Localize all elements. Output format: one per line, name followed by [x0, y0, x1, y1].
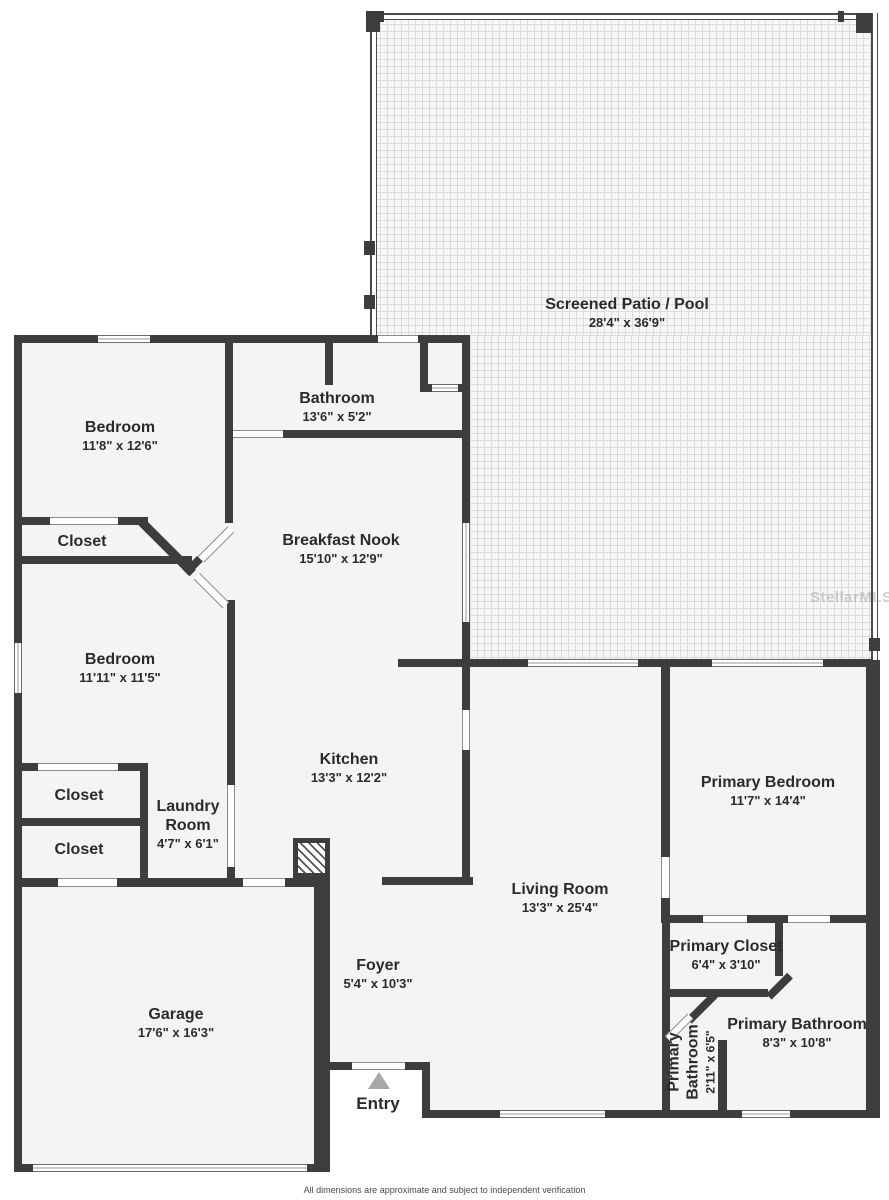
- entry-arrow-icon: [368, 1072, 390, 1089]
- room-name: Bathroom: [299, 389, 375, 408]
- room-name: Room: [156, 816, 219, 835]
- patio-floor-lower: [470, 335, 872, 660]
- room-name: Breakfast Nook: [282, 531, 399, 550]
- patio-floor-upper: [373, 17, 872, 335]
- room-dims: 15'10" x 12'9": [282, 550, 399, 567]
- room-dims: 13'3" x 12'2": [311, 769, 387, 786]
- chimney-chase: [293, 838, 330, 878]
- wall: [14, 556, 192, 564]
- room-name: Bedroom: [82, 418, 158, 437]
- room-label-bedroom-1: Bedroom 11'8" x 12'6": [82, 418, 158, 454]
- mls-watermark: StellarMLS: [810, 589, 889, 606]
- door-opening: [50, 517, 118, 525]
- room-name: Foyer: [343, 956, 412, 975]
- front-door-opening: [352, 1062, 405, 1070]
- room-name: Closet: [58, 532, 107, 551]
- room-name: Laundry: [156, 797, 219, 816]
- door-opening: [233, 430, 283, 438]
- patio-screen-wall-top: [370, 13, 878, 20]
- window: [462, 523, 470, 622]
- room-label-bathroom: Bathroom 13'6" x 5'2": [299, 389, 375, 425]
- floor-plan: Screened Patio / Pool 28'4" x 36'9" Bedr…: [0, 0, 889, 1200]
- room-dims: 13'3" x 25'4": [512, 899, 609, 916]
- room-name: Closet: [55, 840, 104, 859]
- disclaimer-text: All dimensions are approximate and subje…: [0, 1185, 889, 1195]
- wall: [225, 335, 233, 523]
- room-label-primary-bedroom: Primary Bedroom 11'7" x 14'4": [701, 773, 835, 809]
- room-name: Bathroom: [684, 1024, 703, 1100]
- wall: [140, 763, 148, 886]
- room-name: Kitchen: [311, 750, 387, 769]
- window: [432, 384, 458, 392]
- room-label-bedroom-2: Bedroom 11'11" x 11'5": [79, 650, 160, 686]
- room-label-primary-closet: Primary Closet 6'4" x 3'10": [670, 937, 783, 973]
- room-label-kitchen: Kitchen 13'3" x 12'2": [311, 750, 387, 786]
- room-name: Primary Bedroom: [701, 773, 835, 792]
- door-opening: [227, 785, 235, 867]
- room-dims: 4'7" x 6'1": [156, 835, 219, 852]
- window: [500, 1110, 605, 1118]
- garage-door: [33, 1164, 307, 1172]
- window: [712, 659, 823, 667]
- room-dims: 28'4" x 36'9": [545, 314, 709, 331]
- wall: [420, 335, 428, 392]
- door-opening: [661, 857, 670, 898]
- patio-post: [364, 241, 375, 255]
- wall: [422, 1110, 880, 1118]
- wall: [662, 915, 866, 923]
- window: [528, 659, 638, 667]
- room-label-living-room: Living Room 13'3" x 25'4": [512, 880, 609, 916]
- room-label-entry: Entry: [356, 1094, 399, 1113]
- door-opening: [788, 915, 830, 923]
- room-name: Closet: [55, 786, 104, 805]
- door-opening: [38, 763, 118, 771]
- room-dims: 2'11" x 6'5": [703, 1024, 720, 1100]
- patio-post: [364, 295, 375, 309]
- room-label-closet-2: Closet: [55, 786, 104, 805]
- room-name: Screened Patio / Pool: [545, 295, 709, 314]
- room-dims: 11'8" x 12'6": [82, 437, 158, 454]
- room-label-foyer: Foyer 5'4" x 10'3": [343, 956, 412, 992]
- patio-post: [869, 638, 880, 651]
- wall: [382, 877, 473, 885]
- window: [14, 643, 22, 693]
- room-dims: 6'4" x 3'10": [670, 956, 783, 973]
- wall: [14, 818, 148, 826]
- room-dims: 11'11" x 11'5": [79, 669, 160, 686]
- patio-post: [838, 11, 844, 22]
- door-opening: [243, 878, 285, 887]
- room-name: Primary Bathroom: [727, 1015, 867, 1034]
- room-label-closet-3: Closet: [55, 840, 104, 859]
- room-label-primary-bathroom-wc: Primary Bathroom 2'11" x 6'5": [665, 1024, 720, 1100]
- wall: [325, 335, 333, 385]
- wall: [314, 877, 330, 1172]
- room-dims: 5'4" x 10'3": [343, 975, 412, 992]
- door-opening: [462, 710, 470, 750]
- room-name: Living Room: [512, 880, 609, 899]
- wall: [866, 660, 880, 1117]
- room-label-closet-1: Closet: [58, 532, 107, 551]
- window: [742, 1110, 790, 1118]
- room-dims: 17'6" x 16'3": [138, 1024, 214, 1041]
- door-opening: [58, 878, 117, 887]
- room-label-primary-bathroom: Primary Bathroom 8'3" x 10'8": [727, 1015, 867, 1051]
- patio-screen-wall-right: [871, 13, 878, 660]
- door-opening: [378, 335, 418, 343]
- patio-post: [856, 13, 872, 33]
- room-label-laundry: Laundry Room 4'7" x 6'1": [156, 797, 219, 852]
- wall: [14, 335, 22, 1172]
- room-label-breakfast-nook: Breakfast Nook 15'10" x 12'9": [282, 531, 399, 567]
- room-name: Bedroom: [79, 650, 160, 669]
- room-dims: 13'6" x 5'2": [299, 408, 375, 425]
- wall: [422, 1062, 430, 1117]
- room-dims: 8'3" x 10'8": [727, 1034, 867, 1051]
- room-name: Garage: [138, 1005, 214, 1024]
- room-name: Primary: [665, 1024, 684, 1100]
- room-name: Entry: [356, 1094, 399, 1113]
- door-opening: [703, 915, 747, 923]
- room-dims: 11'7" x 14'4": [701, 792, 835, 809]
- room-label-screened-patio: Screened Patio / Pool 28'4" x 36'9": [545, 295, 709, 331]
- room-name: Primary Closet: [670, 937, 783, 956]
- room-label-garage: Garage 17'6" x 16'3": [138, 1005, 214, 1041]
- patio-screen-wall-left: [370, 13, 377, 335]
- patio-post: [378, 11, 384, 22]
- window: [98, 335, 150, 343]
